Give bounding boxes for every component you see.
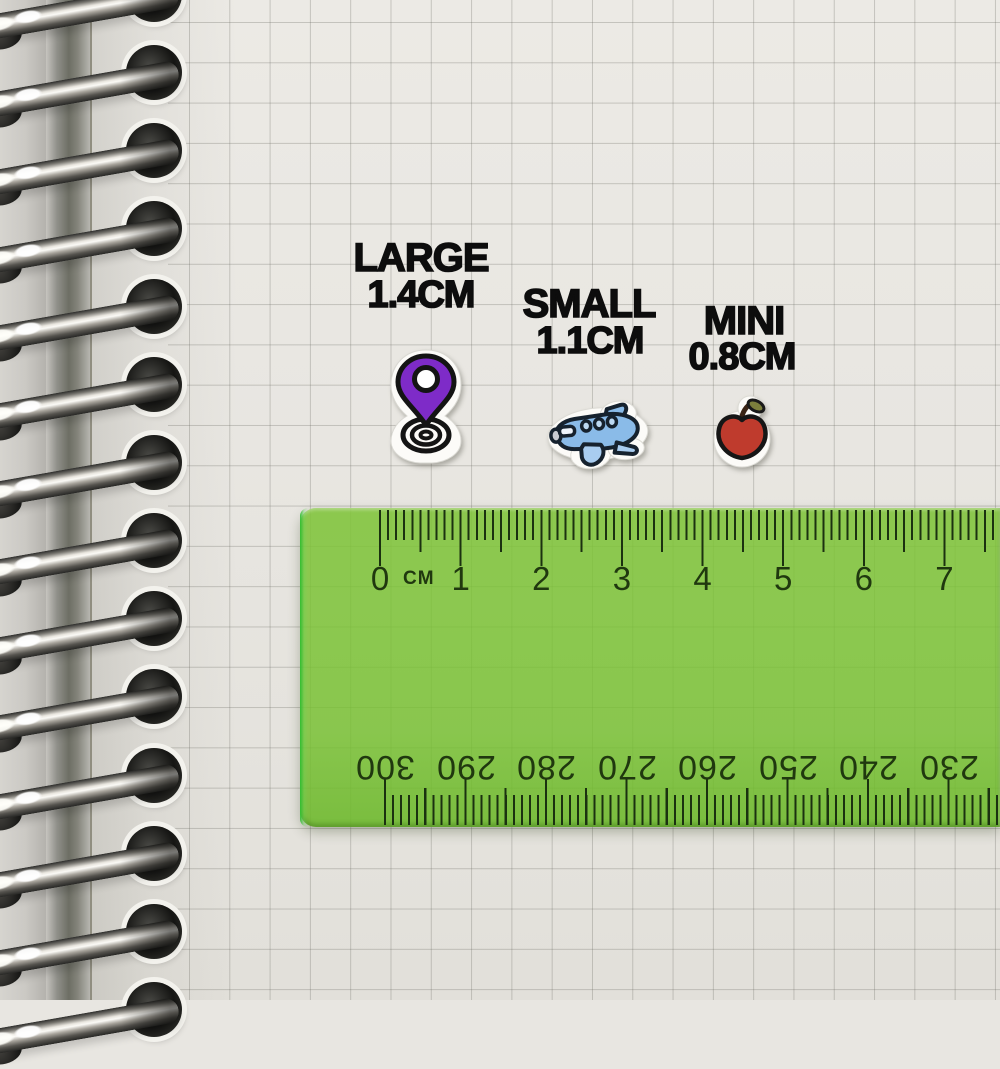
ruler-mm-number: 240 <box>838 747 898 786</box>
ruler-mm-number: 230 <box>919 747 979 786</box>
label-small-size: 1.1CM <box>537 322 644 360</box>
ruler-top-cm-ticks <box>379 510 1000 566</box>
ruler-cm-number: 3 <box>613 560 631 598</box>
ruler-mm-number: 250 <box>758 747 818 786</box>
ruler-unit-label: CM <box>403 568 435 590</box>
airplane-icon <box>543 399 653 471</box>
ruler-cm-number: 4 <box>693 560 711 598</box>
ruler-cm-number: 1 <box>451 560 469 598</box>
apple-icon <box>709 394 777 469</box>
ruler-mm-number: 300 <box>355 747 415 786</box>
spiral-binding <box>0 0 1000 1000</box>
label-large: LARGE <box>354 238 489 278</box>
label-mini: MINI <box>704 301 784 341</box>
ruler-mm-number: 270 <box>597 747 657 786</box>
ruler-mm-number: 280 <box>516 747 576 786</box>
label-large-size: 1.4CM <box>368 276 475 314</box>
ruler-cm-number: 0 <box>371 560 389 598</box>
ruler-mm-number: 260 <box>677 747 737 786</box>
airplane-sticker <box>543 399 653 471</box>
label-small: SMALL <box>523 284 656 324</box>
location-pin-sticker <box>386 348 466 464</box>
notebook-photo-scene: LARGE 1.4CM SMALL 1.1CM MINI 0.8CM <box>0 0 1000 1000</box>
ruler-cm-number: 6 <box>855 560 873 598</box>
label-mini-size: 0.8CM <box>689 338 796 376</box>
ruler-cm-number: 7 <box>935 560 953 598</box>
location-pin-icon <box>386 348 466 464</box>
green-ruler: CM 01234567 300290280270260250240230 <box>300 508 1000 827</box>
ruler-cm-number: 2 <box>532 560 550 598</box>
ruler-mm-number: 290 <box>436 747 496 786</box>
apple-sticker <box>709 394 777 469</box>
ruler-cm-number: 5 <box>774 560 792 598</box>
